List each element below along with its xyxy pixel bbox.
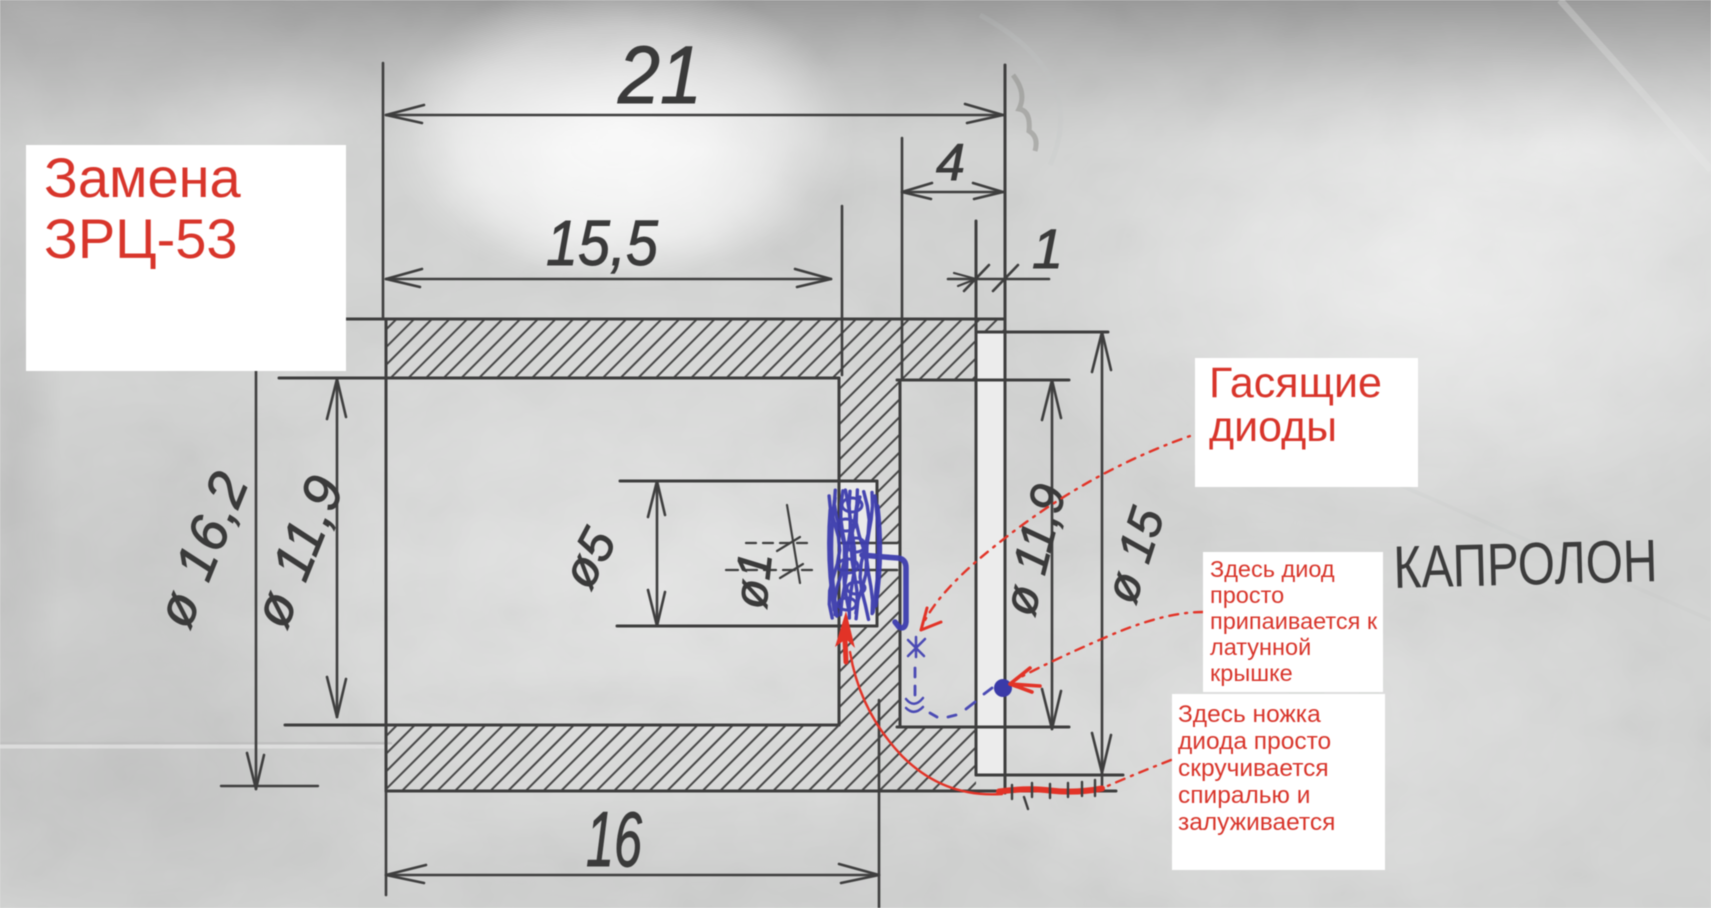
svg-text:4: 4	[936, 134, 965, 192]
svg-text:Гасящие: Гасящие	[1209, 359, 1382, 407]
svg-text:КАПРОЛОН: КАПРОЛОН	[1393, 527, 1659, 601]
svg-text:21: 21	[617, 30, 702, 121]
svg-text:1: 1	[1032, 217, 1063, 280]
svg-text:Замена: Замена	[44, 146, 242, 209]
svg-text:Здесь диод: Здесь диод	[1210, 556, 1335, 582]
svg-text:диоды: диоды	[1209, 403, 1337, 451]
svg-text:скручивается: скручивается	[1178, 755, 1329, 782]
svg-text:15,5: 15,5	[546, 207, 658, 279]
svg-text:залуживается: залуживается	[1178, 809, 1335, 836]
svg-text:16: 16	[586, 795, 642, 883]
svg-text:припаивается к: припаивается к	[1210, 608, 1378, 634]
svg-text:спиралью и: спиралью и	[1178, 782, 1310, 809]
svg-text:латунной: латунной	[1210, 634, 1311, 660]
svg-text:крышке: крышке	[1210, 660, 1293, 686]
svg-text:просто: просто	[1210, 582, 1284, 608]
svg-text:ø1: ø1	[724, 550, 783, 611]
svg-text:ЗРЦ-53: ЗРЦ-53	[44, 207, 238, 270]
svg-text:диода просто: диода просто	[1178, 728, 1331, 755]
svg-text:Здесь ножка: Здесь ножка	[1178, 701, 1321, 728]
